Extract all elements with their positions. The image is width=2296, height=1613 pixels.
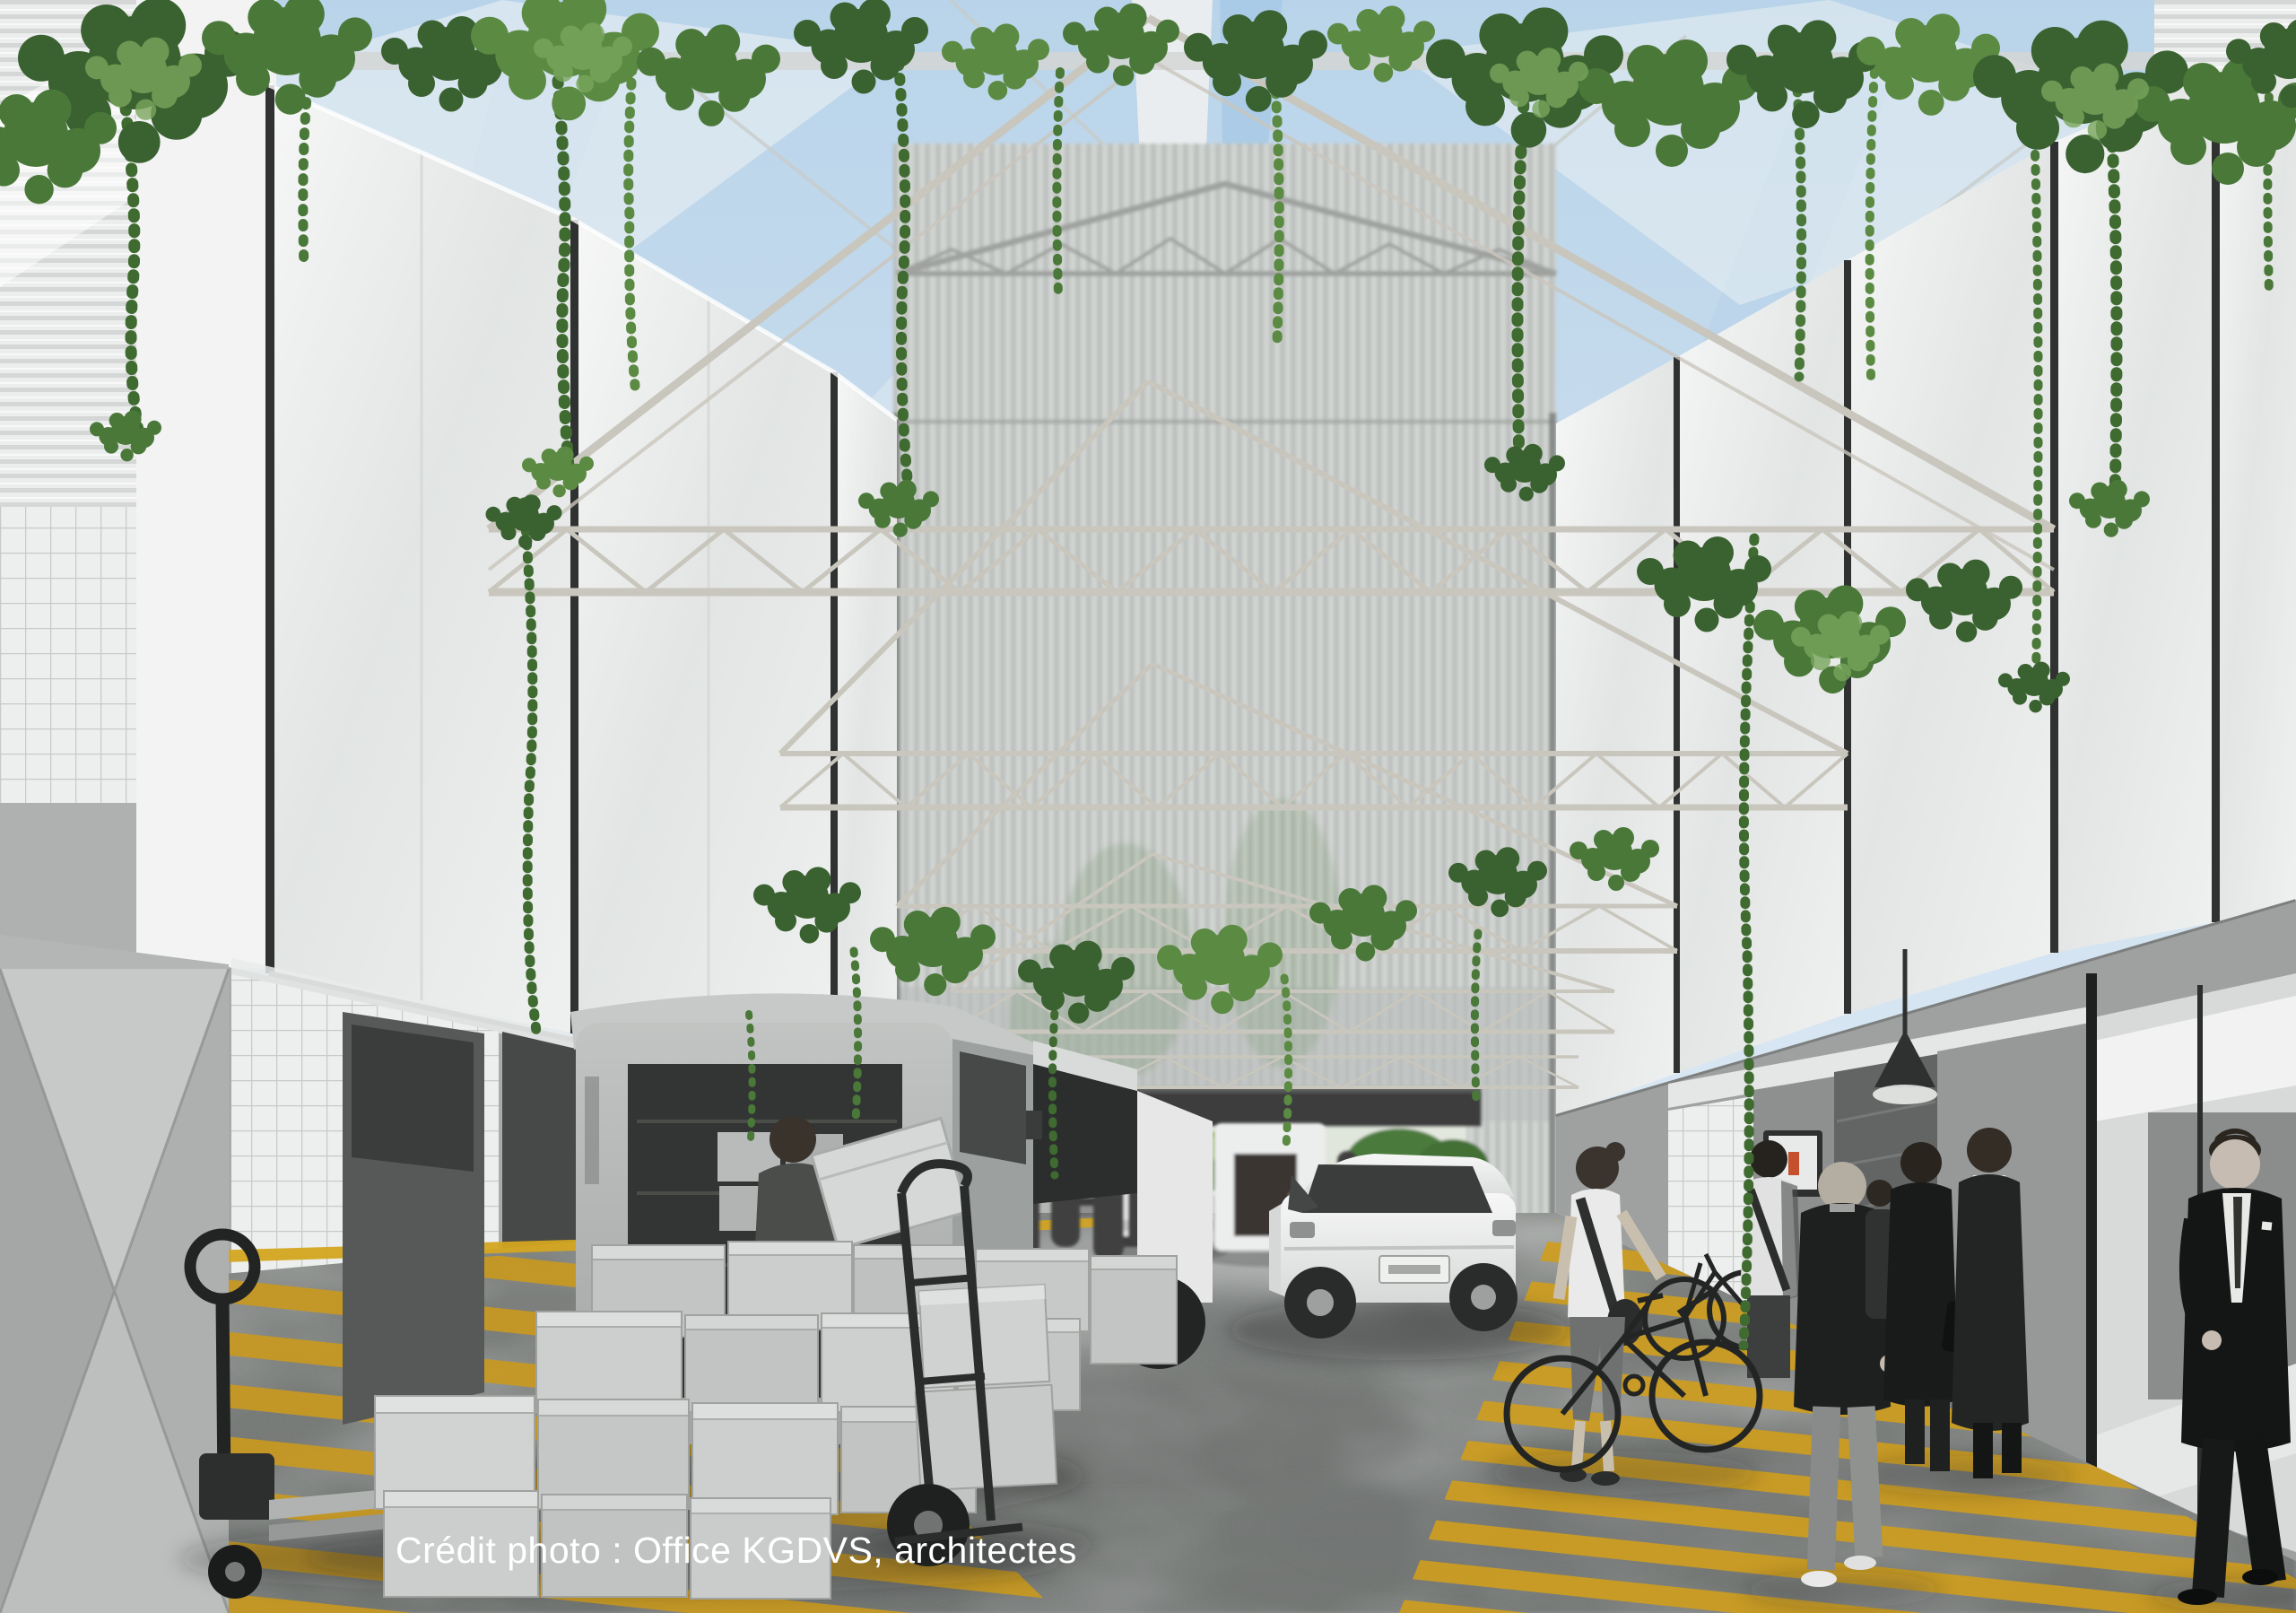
architectural-rendering: Crédit photo : Office KGDVS, architectes [0,0,2296,1613]
left-mullion-1 [265,85,274,973]
left-mullion-3 [831,372,838,1094]
photo-credit-caption: Crédit photo : Office KGDVS, architectes [396,1530,1077,1571]
left-mullion-2 [570,220,578,1033]
right-bay-4 [1556,357,1677,1117]
scene-canvas: Crédit photo : Office KGDVS, architectes [0,0,2296,1613]
hatchback-rear-window [1302,1164,1492,1213]
left-doorway [502,1032,587,1265]
